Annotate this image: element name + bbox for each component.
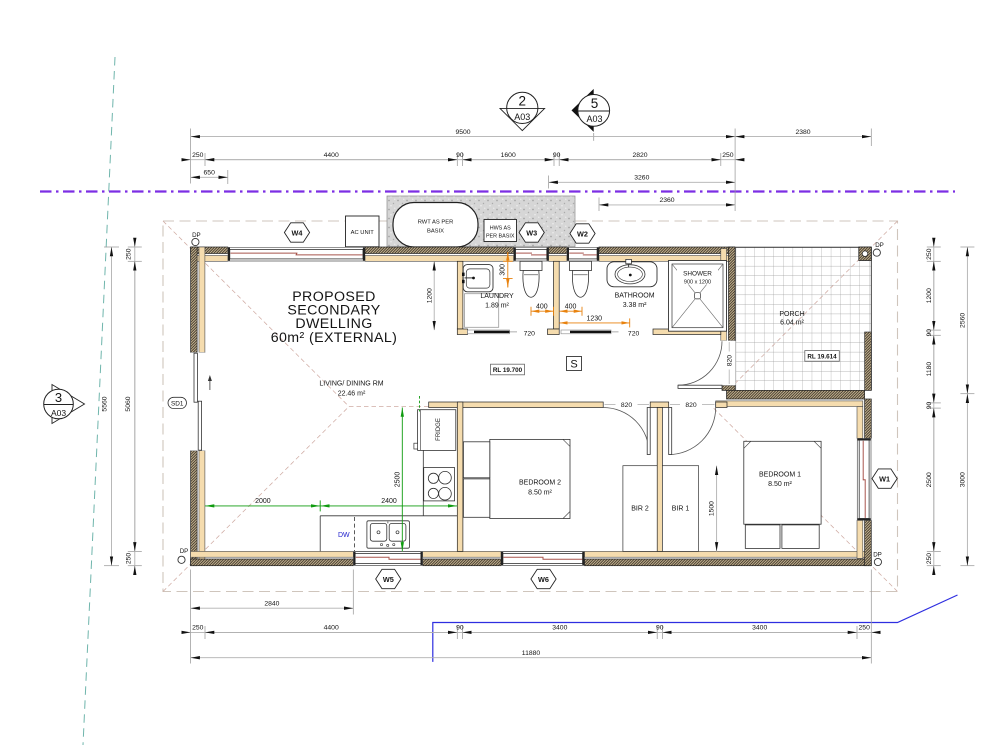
svg-text:3400: 3400 bbox=[552, 625, 567, 632]
svg-text:1.89 m²: 1.89 m² bbox=[485, 303, 509, 310]
svg-text:DP: DP bbox=[192, 232, 201, 239]
svg-text:5560: 5560 bbox=[102, 396, 109, 411]
svg-text:11880: 11880 bbox=[522, 650, 541, 657]
svg-text:720: 720 bbox=[628, 331, 640, 338]
svg-text:90: 90 bbox=[456, 152, 464, 159]
svg-text:LIVING/ DINING RM: LIVING/ DINING RM bbox=[319, 380, 383, 387]
svg-text:DP: DP bbox=[873, 552, 882, 559]
svg-text:6.04 m²: 6.04 m² bbox=[780, 320, 804, 327]
svg-text:A03: A03 bbox=[586, 114, 602, 124]
svg-text:4400: 4400 bbox=[324, 625, 339, 632]
svg-text:2500: 2500 bbox=[926, 472, 933, 487]
svg-text:250: 250 bbox=[859, 625, 871, 632]
svg-text:250: 250 bbox=[126, 553, 133, 565]
svg-text:900 x 1200: 900 x 1200 bbox=[684, 280, 711, 286]
svg-text:1180: 1180 bbox=[926, 362, 933, 377]
svg-text:820: 820 bbox=[685, 402, 697, 409]
svg-text:8.50 m²: 8.50 m² bbox=[768, 481, 792, 488]
svg-text:250: 250 bbox=[926, 553, 933, 565]
svg-text:2560: 2560 bbox=[960, 313, 967, 328]
svg-text:90: 90 bbox=[926, 402, 933, 410]
svg-text:9500: 9500 bbox=[455, 129, 470, 136]
svg-text:400: 400 bbox=[565, 304, 577, 311]
svg-text:1500: 1500 bbox=[708, 501, 715, 516]
svg-text:2: 2 bbox=[519, 93, 527, 108]
svg-text:1200: 1200 bbox=[426, 288, 433, 303]
svg-text:300: 300 bbox=[500, 264, 507, 276]
svg-text:PER BASIX: PER BASIX bbox=[486, 234, 515, 240]
svg-text:3: 3 bbox=[55, 390, 62, 405]
svg-text:820: 820 bbox=[621, 402, 633, 409]
svg-text:3400: 3400 bbox=[752, 625, 767, 632]
svg-text:PORCH: PORCH bbox=[779, 311, 804, 318]
svg-text:250: 250 bbox=[192, 152, 204, 159]
svg-text:250: 250 bbox=[722, 152, 734, 159]
svg-text:RL 19.614: RL 19.614 bbox=[807, 353, 837, 360]
svg-text:2820: 2820 bbox=[632, 152, 647, 159]
svg-text:4400: 4400 bbox=[324, 152, 339, 159]
svg-text:250: 250 bbox=[192, 625, 204, 632]
svg-text:W1: W1 bbox=[879, 474, 890, 483]
svg-text:BEDROOM 1: BEDROOM 1 bbox=[759, 472, 801, 479]
svg-text:90: 90 bbox=[656, 625, 664, 632]
svg-text:90: 90 bbox=[926, 329, 933, 337]
svg-text:RL 19.700: RL 19.700 bbox=[493, 367, 523, 374]
svg-text:RWT AS PER: RWT AS PER bbox=[418, 220, 454, 226]
svg-text:W2: W2 bbox=[577, 229, 588, 238]
svg-text:BIR 2: BIR 2 bbox=[631, 506, 649, 513]
svg-text:BIR 1: BIR 1 bbox=[672, 506, 690, 513]
svg-text:2360: 2360 bbox=[659, 197, 674, 204]
svg-text:2380: 2380 bbox=[795, 129, 810, 136]
svg-text:BEDROOM 2: BEDROOM 2 bbox=[519, 479, 561, 486]
svg-text:2000: 2000 bbox=[255, 498, 271, 505]
svg-text:BATHROOM: BATHROOM bbox=[615, 293, 655, 300]
svg-text:W5: W5 bbox=[383, 575, 394, 584]
svg-text:1230: 1230 bbox=[587, 315, 603, 322]
svg-text:A03: A03 bbox=[51, 408, 66, 418]
svg-text:5060: 5060 bbox=[125, 396, 132, 411]
svg-text:400: 400 bbox=[536, 304, 548, 311]
svg-text:DP: DP bbox=[875, 242, 884, 249]
svg-text:8.50 m²: 8.50 m² bbox=[528, 490, 552, 497]
svg-text:SD1: SD1 bbox=[171, 401, 184, 408]
svg-text:3.38 m²: 3.38 m² bbox=[623, 302, 647, 309]
svg-text:3260: 3260 bbox=[634, 175, 649, 182]
svg-text:5: 5 bbox=[591, 96, 599, 111]
svg-text:1600: 1600 bbox=[501, 152, 516, 159]
svg-text:720: 720 bbox=[524, 331, 536, 338]
svg-text:60m² (EXTERNAL): 60m² (EXTERNAL) bbox=[271, 330, 398, 346]
svg-text:A03: A03 bbox=[514, 112, 530, 122]
svg-text:2840: 2840 bbox=[264, 600, 279, 607]
svg-text:22.46 m²: 22.46 m² bbox=[338, 391, 366, 398]
svg-text:W3: W3 bbox=[526, 228, 537, 237]
svg-text:S: S bbox=[570, 359, 577, 371]
svg-text:DW: DW bbox=[338, 532, 350, 539]
svg-text:650: 650 bbox=[204, 170, 216, 177]
svg-text:1200: 1200 bbox=[926, 288, 933, 303]
svg-text:2500: 2500 bbox=[394, 472, 401, 488]
svg-text:HWS AS: HWS AS bbox=[490, 226, 511, 232]
svg-text:2400: 2400 bbox=[381, 498, 397, 505]
svg-text:LAUNDRY: LAUNDRY bbox=[480, 293, 514, 300]
svg-text:250: 250 bbox=[126, 248, 133, 260]
svg-text:DP: DP bbox=[180, 548, 189, 555]
svg-text:W6: W6 bbox=[538, 575, 549, 584]
svg-text:3000: 3000 bbox=[960, 472, 967, 487]
svg-text:90: 90 bbox=[456, 625, 464, 632]
svg-text:FRIDGE: FRIDGE bbox=[436, 418, 442, 441]
svg-text:W4: W4 bbox=[292, 228, 304, 237]
svg-text:250: 250 bbox=[926, 248, 933, 260]
svg-text:820: 820 bbox=[726, 355, 733, 367]
svg-text:SHOWER: SHOWER bbox=[683, 271, 712, 278]
svg-text:AC UNIT: AC UNIT bbox=[351, 230, 375, 236]
svg-text:90: 90 bbox=[553, 152, 561, 159]
svg-text:BASIX: BASIX bbox=[427, 229, 444, 235]
